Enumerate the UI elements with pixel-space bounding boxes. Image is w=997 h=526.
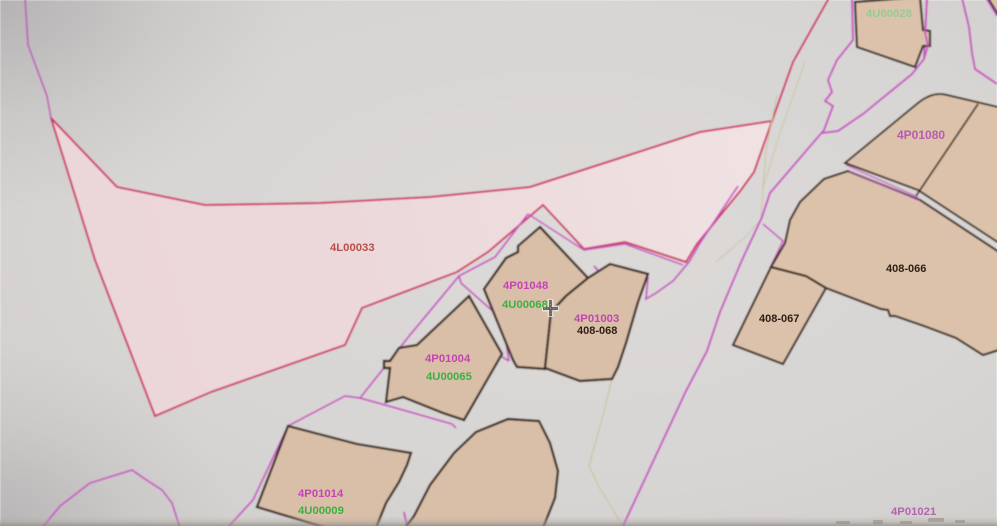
svg-text:4L00033: 4L00033 bbox=[330, 242, 375, 254]
svg-text:408-066: 408-066 bbox=[886, 263, 926, 275]
svg-text:4U00009: 4U00009 bbox=[298, 505, 344, 517]
svg-text:4U00068: 4U00068 bbox=[502, 299, 548, 311]
svg-text:408-067: 408-067 bbox=[759, 313, 799, 325]
svg-text:4P01080: 4P01080 bbox=[897, 128, 945, 142]
svg-text:4U00065: 4U00065 bbox=[426, 371, 472, 383]
svg-text:4P01004: 4P01004 bbox=[425, 353, 471, 365]
svg-text:408-068: 408-068 bbox=[577, 325, 617, 337]
svg-text:4P01014: 4P01014 bbox=[298, 488, 344, 500]
svg-text:4P01048: 4P01048 bbox=[503, 280, 548, 292]
svg-text:4P01003: 4P01003 bbox=[574, 313, 619, 325]
svg-text:4U00028: 4U00028 bbox=[866, 8, 912, 20]
